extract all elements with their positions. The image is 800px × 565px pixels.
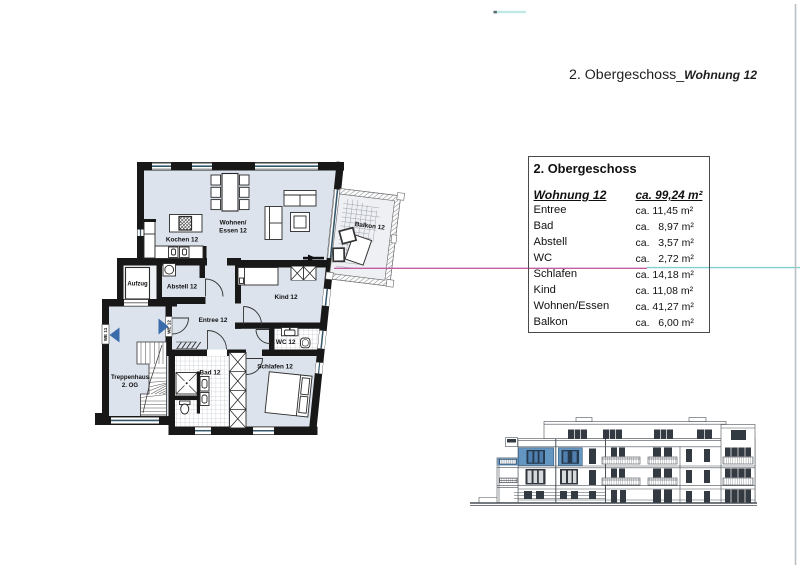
svg-text:Essen 12: Essen 12 xyxy=(219,228,247,235)
svg-text:Wohnen/: Wohnen/ xyxy=(220,220,247,227)
svg-text:WE 11: WE 11 xyxy=(103,327,108,341)
svg-text:Kochen 12: Kochen 12 xyxy=(166,237,199,244)
svg-text:Schlafen 12: Schlafen 12 xyxy=(257,364,293,371)
svg-text:Aufzug: Aufzug xyxy=(127,282,148,288)
svg-text:Bad 12: Bad 12 xyxy=(200,370,221,377)
svg-text:Entree 12: Entree 12 xyxy=(199,317,228,324)
svg-text:WC 12: WC 12 xyxy=(276,339,296,346)
svg-text:Treppenhaus: Treppenhaus xyxy=(111,374,150,381)
svg-text:Abstell 12: Abstell 12 xyxy=(167,284,198,291)
svg-text:WE 12: WE 12 xyxy=(167,320,172,334)
svg-text:2. OG: 2. OG xyxy=(122,382,139,389)
svg-text:Kind 12: Kind 12 xyxy=(274,294,298,301)
